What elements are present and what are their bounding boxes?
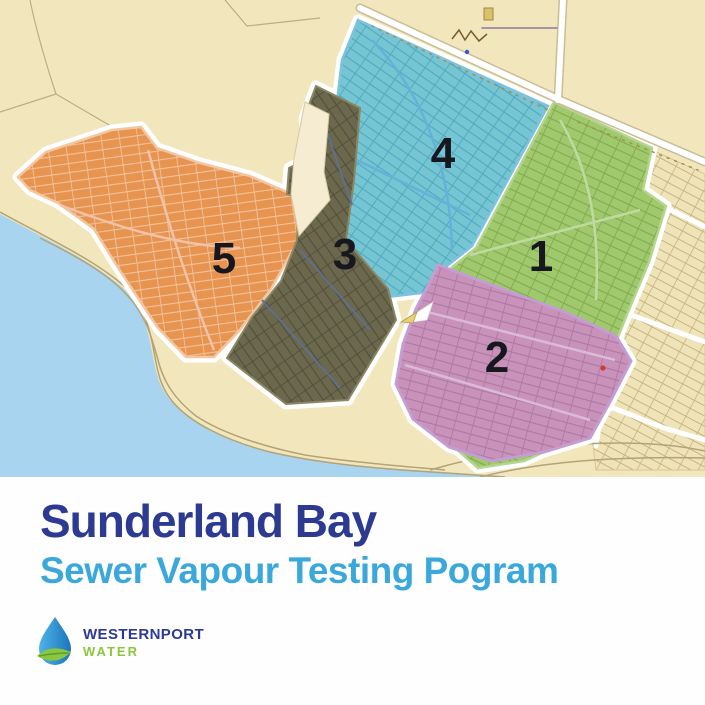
zone-3-label: 3 — [333, 230, 357, 279]
water-drop-icon — [36, 615, 74, 669]
red-dot-marker — [600, 365, 605, 370]
westernport-water-logo: WESTERNPORT WATER — [36, 615, 204, 669]
zone-2-label: 2 — [485, 333, 509, 382]
zone-5-label: 5 — [212, 234, 236, 283]
flyer: 1 2 3 4 5 Sunderland Bay Sewer Vapour Te… — [0, 0, 705, 705]
logo-text: WESTERNPORT WATER — [83, 626, 204, 659]
building-mark — [484, 8, 493, 20]
zones-map-image: 1 2 3 4 5 — [0, 0, 705, 477]
logo-line2: WATER — [83, 644, 204, 659]
zone-1-label: 1 — [529, 232, 553, 281]
map: 1 2 3 4 5 — [0, 0, 705, 477]
page-subtitle: Sewer Vapour Testing Pogram — [0, 545, 705, 591]
zone-4-label: 4 — [431, 129, 456, 178]
page-title: Sunderland Bay — [0, 477, 705, 545]
caption-panel: Sunderland Bay Sewer Vapour Testing Pogr… — [0, 477, 705, 705]
blue-dot-marker — [465, 50, 469, 54]
logo-line1: WESTERNPORT — [83, 626, 204, 643]
